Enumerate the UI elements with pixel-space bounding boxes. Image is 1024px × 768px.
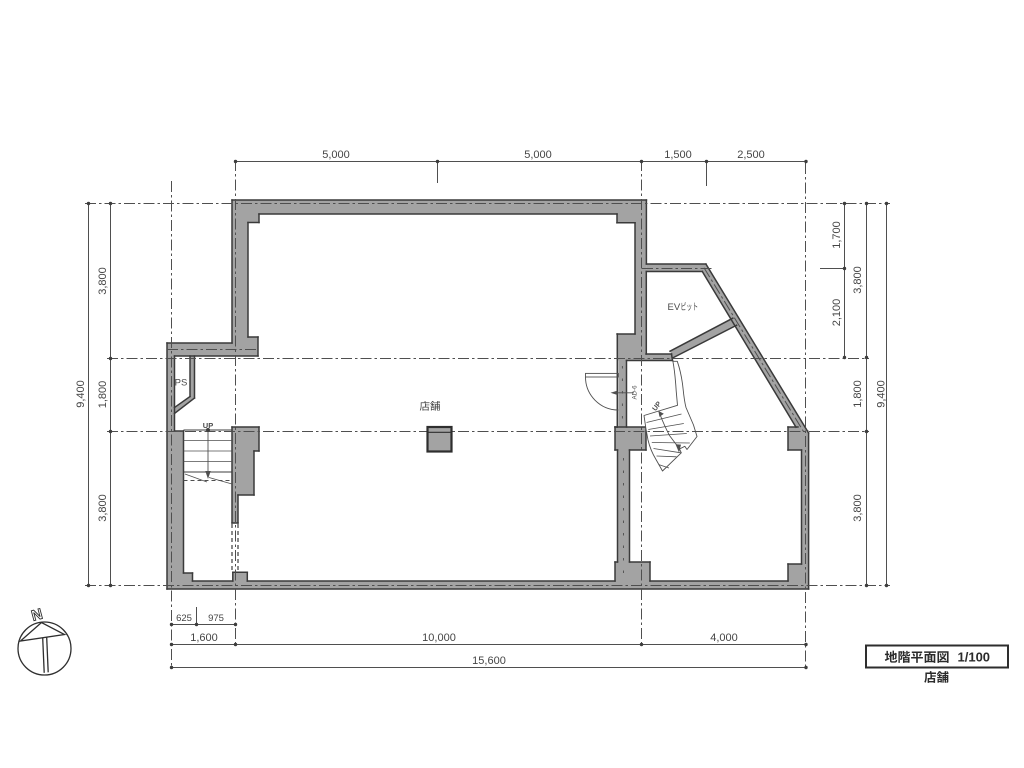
svg-text:975: 975	[208, 613, 224, 624]
svg-text:10,000: 10,000	[422, 632, 456, 644]
svg-text:1/100: 1/100	[958, 650, 991, 665]
svg-text:5,000: 5,000	[524, 149, 552, 161]
svg-text:2,100: 2,100	[831, 299, 843, 327]
svg-text:N: N	[30, 606, 45, 625]
svg-text:3,800: 3,800	[97, 267, 109, 295]
svg-text:EV: EV	[668, 302, 681, 313]
svg-text:1,800: 1,800	[97, 381, 109, 409]
svg-text:625: 625	[176, 613, 192, 624]
svg-text:1,800: 1,800	[852, 380, 864, 408]
svg-text:AD-6: AD-6	[632, 385, 639, 400]
svg-text:1,500: 1,500	[664, 149, 692, 161]
svg-text:PS: PS	[175, 378, 188, 389]
svg-text:1,600: 1,600	[190, 632, 218, 644]
svg-text:3,800: 3,800	[852, 494, 864, 522]
svg-text:9,400: 9,400	[75, 380, 87, 408]
svg-text:3,800: 3,800	[852, 266, 864, 294]
svg-text:15,600: 15,600	[472, 655, 506, 667]
svg-text:5,000: 5,000	[322, 149, 350, 161]
svg-text:4,000: 4,000	[710, 632, 738, 644]
svg-text:3,800: 3,800	[97, 494, 109, 522]
svg-text:9,400: 9,400	[876, 380, 888, 408]
svg-text:2,500: 2,500	[737, 149, 765, 161]
svg-text:1,700: 1,700	[831, 221, 843, 249]
